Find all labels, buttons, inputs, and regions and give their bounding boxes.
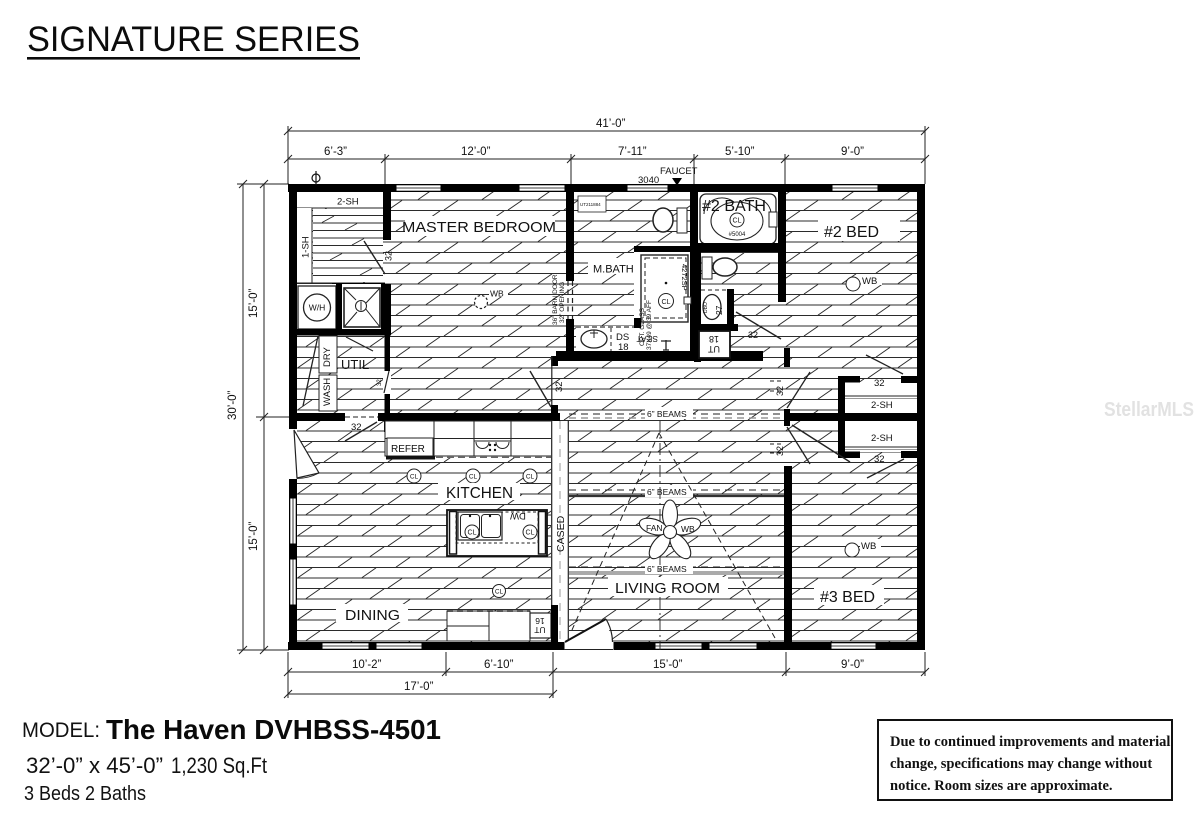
svg-text:32: 32 [748, 330, 758, 340]
svg-text:32: 32 [377, 379, 383, 386]
svg-text:notice. Room sizes are approxi: notice. Room sizes are approximate. [890, 778, 1113, 794]
svg-text:30’-0”: 30’-0” [227, 390, 239, 420]
svg-text:WB: WB [862, 276, 877, 287]
svg-text:32: 32 [874, 454, 885, 465]
svg-text:1-SH: 1-SH [301, 236, 312, 258]
svg-text:6” BEAMS: 6” BEAMS [647, 564, 687, 574]
svg-text:CL: CL [410, 474, 419, 481]
svg-text:DBO: DBO [703, 302, 709, 313]
svg-text:15’-0”: 15’-0” [248, 521, 260, 551]
svg-text:Due to continued improvements: Due to continued improvements and materi… [890, 734, 1170, 750]
svg-text:#3 BED: #3 BED [820, 589, 875, 606]
svg-text:32” OPENING: 32” OPENING [559, 282, 566, 323]
svg-text:9’-0”: 9’-0” [841, 146, 864, 158]
svg-text:#2 BATH: #2 BATH [702, 198, 766, 215]
svg-text:CL: CL [495, 589, 504, 596]
svg-text:StellarMLS: StellarMLS [1104, 399, 1194, 421]
svg-text:18: 18 [709, 334, 719, 344]
svg-text:17’-0”: 17’-0” [404, 681, 434, 693]
svg-text:CL: CL [733, 218, 742, 225]
svg-text:CL: CL [468, 530, 477, 537]
svg-text:6” BEAMS: 6” BEAMS [647, 487, 687, 497]
svg-text:FAN: FAN [646, 523, 663, 533]
svg-text:UT: UT [708, 344, 720, 354]
svg-text:change, specifications may cha: change, specifications may change withou… [890, 756, 1152, 772]
svg-text:9’-0”: 9’-0” [841, 659, 864, 671]
svg-text:1,230 Sq.Ft: 1,230 Sq.Ft [171, 753, 267, 778]
svg-text:#2 BED: #2 BED [824, 224, 879, 241]
svg-text:32: 32 [351, 422, 362, 433]
svg-text:SEAT: SEAT [636, 334, 658, 344]
svg-text:#5004: #5004 [729, 232, 746, 238]
svg-text:WB: WB [490, 289, 504, 299]
svg-text:MODEL:: MODEL: [22, 719, 100, 742]
svg-text:DRY: DRY [322, 346, 333, 367]
svg-text:SIGNATURE SERIES: SIGNATURE SERIES [27, 20, 360, 59]
svg-text:MASTER BEDROOM: MASTER BEDROOM [402, 219, 556, 236]
svg-text:UTIL: UTIL [341, 357, 369, 372]
svg-text:CASED: CASED [555, 515, 567, 552]
svg-text:41’-0”: 41’-0” [596, 118, 626, 130]
svg-text:6” BEAMS: 6” BEAMS [647, 409, 687, 419]
svg-text:2-SH: 2-SH [871, 433, 893, 444]
svg-text:DW: DW [510, 510, 526, 521]
svg-text:DINING: DINING [345, 608, 400, 624]
svg-text:15’-0”: 15’-0” [248, 288, 260, 318]
svg-text:The Haven DVHBSS-4501: The Haven DVHBSS-4501 [106, 714, 441, 745]
svg-text:WASH: WASH [322, 378, 333, 406]
svg-text:2-SH: 2-SH [871, 400, 893, 411]
svg-text:32: 32 [554, 381, 565, 392]
svg-text:UT211884: UT211884 [580, 202, 601, 207]
svg-text:FAUCET: FAUCET [660, 166, 698, 177]
svg-text:7’-11”: 7’-11” [618, 146, 647, 158]
svg-text:12’-0”: 12’-0” [461, 146, 491, 158]
svg-text:32’-0” x 45’-0”: 32’-0” x 45’-0” [26, 753, 163, 778]
svg-text:WB: WB [681, 524, 695, 534]
svg-text:6’-10”: 6’-10” [484, 659, 514, 671]
svg-text:2-SH: 2-SH [337, 197, 359, 208]
svg-text:32: 32 [775, 446, 785, 456]
svg-text:5’-10”: 5’-10” [725, 146, 755, 158]
svg-text:CL: CL [526, 474, 535, 481]
svg-text:CL: CL [662, 299, 671, 306]
svg-text:CL: CL [526, 530, 535, 537]
svg-text:32: 32 [874, 378, 885, 389]
svg-text:10’-2”: 10’-2” [352, 659, 382, 671]
svg-text:REFER: REFER [391, 444, 425, 455]
svg-text:3040: 3040 [638, 175, 659, 186]
svg-text:3 Beds 2 Baths: 3 Beds 2 Baths [24, 783, 146, 805]
svg-text:15’-0”: 15’-0” [653, 659, 683, 671]
svg-text:KITCHEN: KITCHEN [446, 485, 513, 502]
svg-text:27: 27 [714, 305, 724, 315]
svg-text:CL: CL [469, 474, 478, 481]
svg-text:6’-3”: 6’-3” [324, 146, 347, 158]
svg-text:32: 32 [384, 251, 394, 261]
svg-text:4272SP: 4272SP [680, 264, 689, 291]
svg-text:W/H: W/H [309, 303, 326, 313]
svg-text:LIVING ROOM: LIVING ROOM [615, 580, 720, 597]
svg-text:36” BARN DOOR: 36” BARN DOOR [552, 274, 559, 325]
svg-text:WB: WB [861, 541, 876, 552]
svg-text:16: 16 [535, 616, 545, 626]
svg-text:M.BATH: M.BATH [593, 264, 634, 276]
